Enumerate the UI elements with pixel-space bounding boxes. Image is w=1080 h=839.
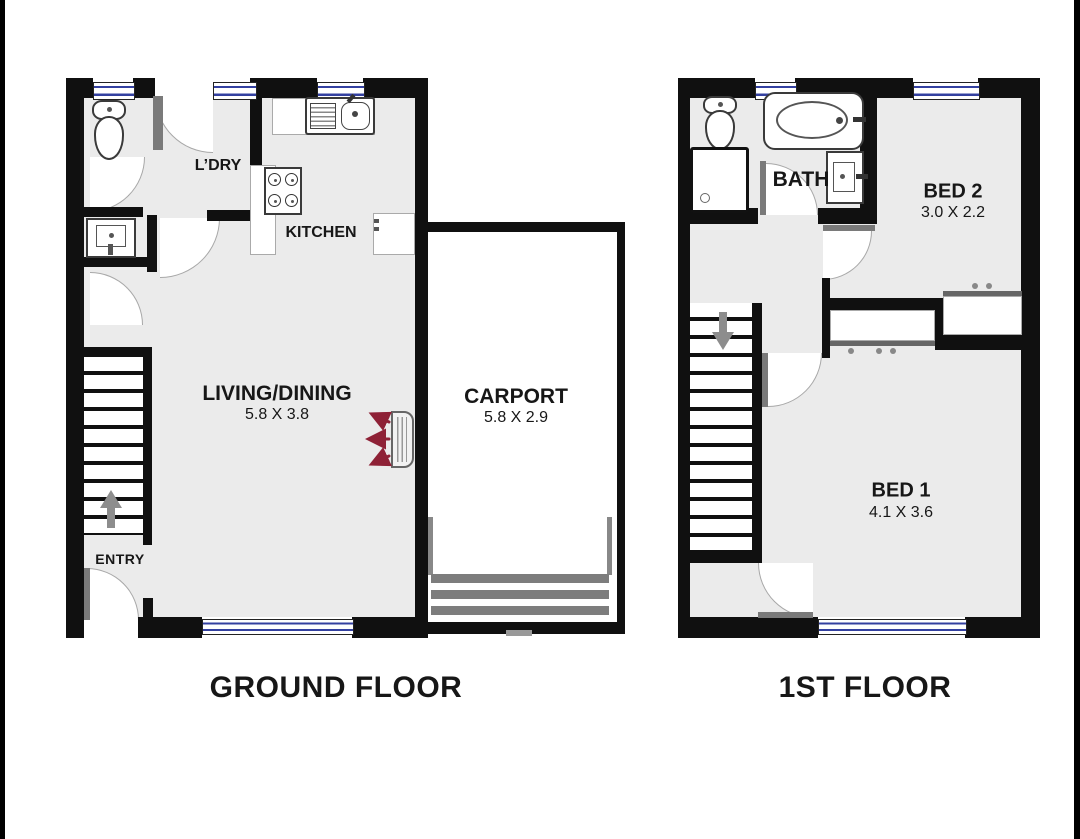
wall xyxy=(352,617,428,638)
wardrobe xyxy=(943,283,1022,335)
door-jamb xyxy=(760,161,766,215)
room-label-bed1: BED 1 xyxy=(872,480,931,503)
heater-icon xyxy=(391,411,414,468)
toilet-icon xyxy=(699,92,741,152)
wall xyxy=(935,302,943,350)
wall xyxy=(822,278,830,358)
floorplan-canvas: L’DRY KITCHEN LIVING/DINING 5.8 X 3.8 CA… xyxy=(0,0,1080,839)
window xyxy=(213,82,257,100)
laundry-tub-icon xyxy=(86,218,136,258)
toilet-icon xyxy=(88,96,130,162)
room-label-carport: CARPORT xyxy=(464,385,568,409)
stair-arrow-up-icon xyxy=(98,488,124,530)
stair-arrow-down-icon xyxy=(710,310,736,352)
wall xyxy=(1021,78,1040,638)
door-jamb xyxy=(762,353,768,407)
wall xyxy=(84,347,152,357)
wall xyxy=(66,78,84,638)
wall xyxy=(66,78,93,98)
shower-icon xyxy=(690,147,749,213)
wall xyxy=(133,78,155,98)
door-opening xyxy=(155,78,213,96)
wall xyxy=(138,617,202,638)
door-jamb xyxy=(153,96,163,150)
door-leaf xyxy=(758,612,813,618)
fridge xyxy=(373,213,415,255)
wall xyxy=(965,617,1040,638)
wall xyxy=(943,335,1023,350)
stove-icon xyxy=(264,167,302,215)
wall xyxy=(84,207,143,217)
room-dims-carport: 5.8 X 2.9 xyxy=(484,409,548,427)
airflow-arrows-icon xyxy=(364,408,392,470)
wall xyxy=(752,303,762,563)
wall xyxy=(678,617,818,638)
wall xyxy=(82,257,147,267)
wall xyxy=(818,208,877,224)
carport-wall xyxy=(617,222,625,634)
room-dims-bed2: 3.0 X 2.2 xyxy=(921,204,985,222)
room-dims-living: 5.8 X 3.8 xyxy=(245,406,309,424)
room-label-kitchen: KITCHEN xyxy=(285,224,356,242)
room-label-laundry: L’DRY xyxy=(195,157,242,175)
entry-door-leaf xyxy=(84,568,90,620)
garage-door xyxy=(431,574,609,616)
wall xyxy=(143,598,153,617)
room-label-living: LIVING/DINING xyxy=(202,382,351,406)
room-label-entry: ENTRY xyxy=(95,551,144,567)
wall xyxy=(830,298,943,310)
wall xyxy=(255,78,317,98)
left-edge-bar xyxy=(0,0,5,839)
wardrobe xyxy=(830,310,935,346)
right-edge-bar xyxy=(1074,0,1080,839)
floor-title-ground: GROUND FLOOR xyxy=(210,671,463,705)
wall xyxy=(415,78,428,618)
room-label-bed2: BED 2 xyxy=(924,181,983,204)
garage-door-track xyxy=(428,517,433,575)
garage-door-handle xyxy=(506,630,532,636)
window xyxy=(913,82,980,100)
garage-door-track xyxy=(607,517,612,575)
door-sill xyxy=(823,225,875,231)
room-dims-bed1: 4.1 X 3.6 xyxy=(869,504,933,522)
vanity-sink-icon xyxy=(826,151,864,204)
kitchen-sink-icon xyxy=(305,97,375,135)
window xyxy=(818,619,967,635)
wall xyxy=(147,215,157,272)
wall xyxy=(680,550,758,563)
wall xyxy=(143,347,152,545)
carport-wall xyxy=(428,222,625,232)
floor-title-first: 1ST FLOOR xyxy=(779,671,952,705)
room-label-bath: BATH xyxy=(773,168,830,192)
bathtub-icon xyxy=(763,92,864,150)
window xyxy=(202,619,354,635)
